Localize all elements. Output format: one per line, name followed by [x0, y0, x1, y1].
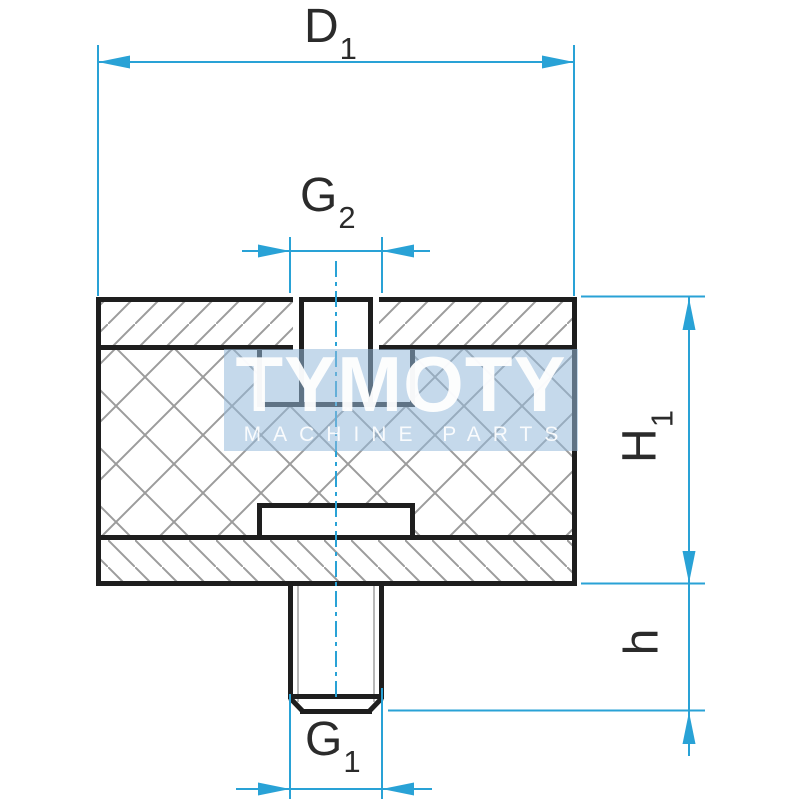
arrow-left-icon — [98, 56, 130, 69]
dimension-label-g1: G1 — [305, 716, 360, 771]
dimension-label-g2: G2 — [300, 172, 355, 227]
dimension-label-d1: D1 — [304, 3, 356, 58]
arrow-up-icon — [683, 712, 696, 744]
arrow-right-icon — [258, 245, 290, 258]
arrow-right-icon — [258, 783, 290, 796]
arrow-right-icon — [542, 56, 574, 69]
watermark-subtitle: MACHINE PARTS — [232, 423, 571, 447]
stud-tip — [290, 698, 382, 712]
arrow-left-icon — [382, 245, 414, 258]
arrow-up-icon — [683, 298, 696, 330]
watermark-title: TYMOTY — [236, 353, 567, 417]
arrow-left-icon — [382, 783, 414, 796]
arrow-down-icon — [683, 551, 696, 583]
dimension-label-h: h — [619, 629, 674, 656]
technical-drawing: TYMOTY MACHINE PARTS D1 G2 H1 h G1 — [0, 0, 800, 800]
watermark: TYMOTY MACHINE PARTS — [224, 349, 578, 451]
dimension-label-h1: H1 — [617, 411, 672, 463]
dimension-h — [388, 584, 705, 756]
